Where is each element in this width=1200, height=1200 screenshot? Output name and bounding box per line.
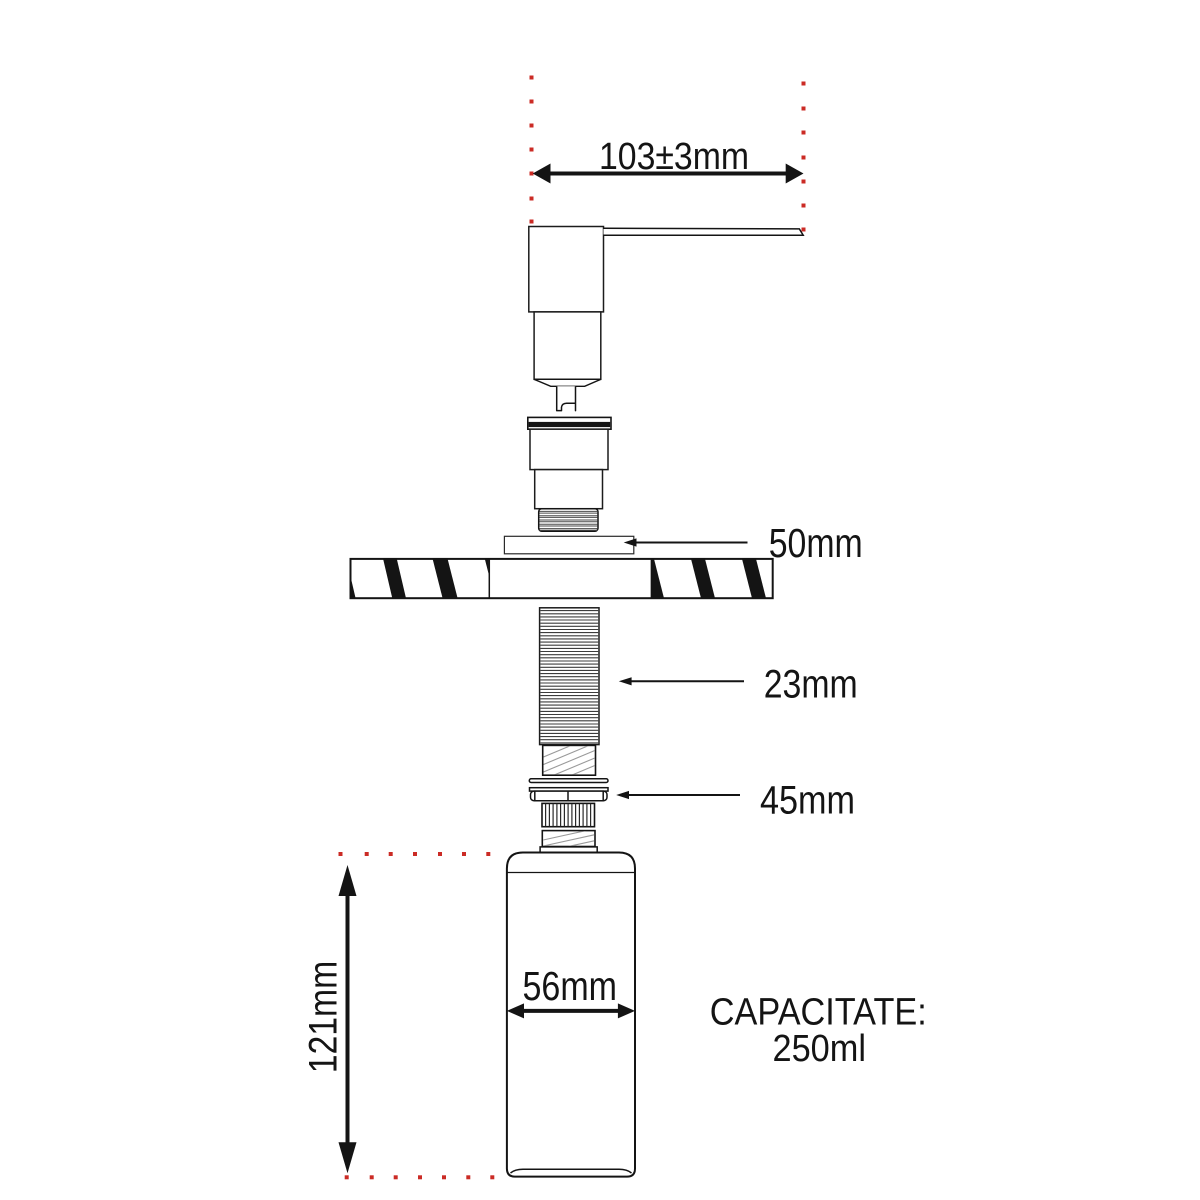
svg-text:250ml: 250ml	[773, 1028, 867, 1070]
svg-text:50mm: 50mm	[769, 520, 863, 566]
svg-text:45mm: 45mm	[760, 779, 855, 823]
svg-text:56mm: 56mm	[523, 963, 618, 1009]
svg-text:23mm: 23mm	[764, 663, 858, 707]
svg-text:121mm: 121mm	[302, 961, 346, 1074]
